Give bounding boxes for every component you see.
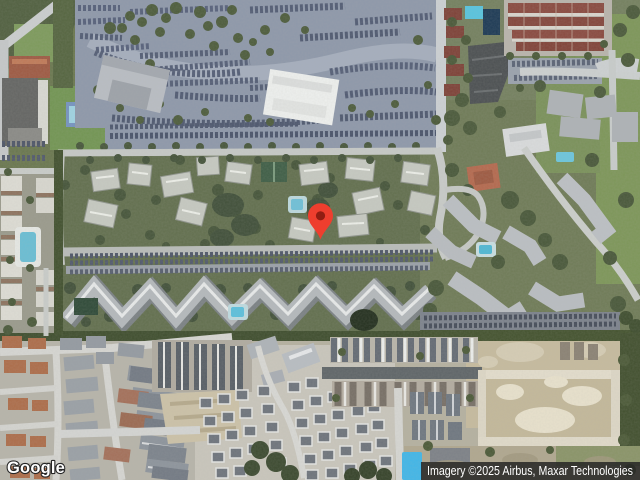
svg-text:Google: Google — [7, 459, 65, 477]
svg-text:Imagery ©2025 Airbus, Maxar Te: Imagery ©2025 Airbus, Maxar Technologies — [427, 464, 633, 478]
